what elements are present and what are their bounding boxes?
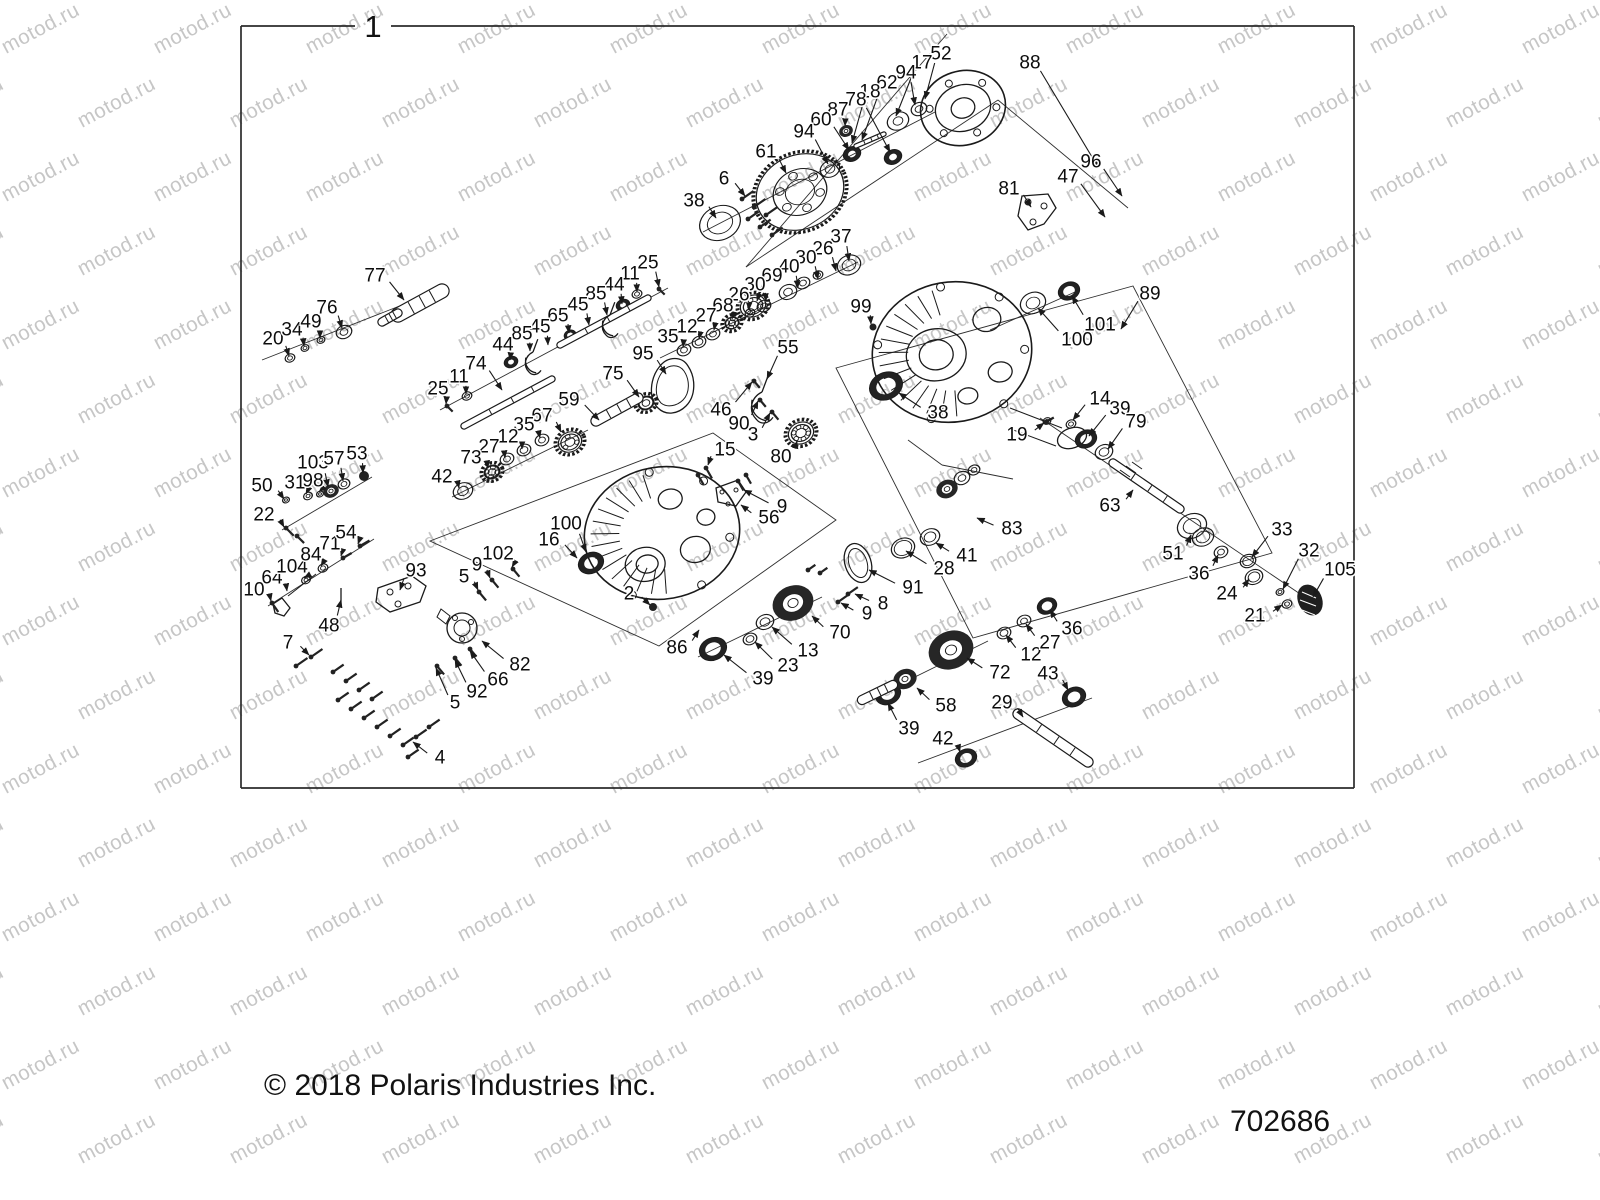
watermark-text: motod.ru	[1518, 738, 1600, 798]
watermark-text: motod.ru	[1062, 1034, 1148, 1094]
watermark-text: motod.ru	[1442, 664, 1528, 724]
bolt-part	[309, 649, 323, 659]
leader-line-8	[855, 594, 869, 601]
watermark-text: motod.ru	[74, 1108, 160, 1168]
watermark-text: motod.ru	[74, 368, 160, 428]
watermark-text: motod.ru	[0, 220, 7, 280]
callout-61: 61	[755, 142, 776, 163]
callout-94: 94	[793, 122, 815, 143]
callout-41: 41	[956, 546, 977, 567]
watermark-text: motod.ru	[682, 960, 768, 1020]
callout-45: 45	[529, 317, 550, 338]
leader-line-61	[779, 159, 786, 173]
callout-38: 38	[683, 191, 704, 212]
callout-9: 9	[862, 604, 873, 625]
shaft-part	[1113, 463, 1180, 509]
watermark-text: motod.ru	[1518, 886, 1600, 946]
callout-56: 56	[758, 508, 779, 529]
watermark-text: motod.ru	[834, 812, 920, 872]
bolt-part	[349, 702, 362, 712]
watermark-text: motod.ru	[910, 1034, 996, 1094]
watermark-text: motod.ru	[682, 220, 768, 280]
detent-ball	[359, 471, 369, 481]
leader-line-35	[538, 431, 540, 438]
callout-65: 65	[547, 306, 568, 327]
watermark-text: motod.ru	[0, 960, 7, 1020]
callout-6: 6	[719, 169, 730, 190]
exploded-parts-diagram: motod.rumotod.rumotod.rumotod.rumotod.ru…	[0, 0, 1600, 1200]
parts-diagram-page: motod.rumotod.rumotod.rumotod.rumotod.ru…	[0, 0, 1600, 1200]
leader-line-15	[708, 456, 711, 465]
callout-98: 98	[302, 471, 323, 492]
watermark-text: motod.ru	[606, 738, 692, 798]
watermark-text: motod.ru	[150, 1034, 236, 1094]
callout-77: 77	[364, 266, 385, 287]
callout-27: 27	[695, 306, 716, 327]
leader-line-32	[1283, 559, 1298, 589]
leader-line-41	[936, 543, 949, 551]
callout-32: 32	[1298, 541, 1319, 562]
callout-78: 78	[845, 90, 866, 111]
watermark-text: motod.ru	[74, 516, 160, 576]
leader-line-27	[504, 452, 505, 458]
callout-25: 25	[427, 379, 448, 400]
leader-line-101	[1072, 296, 1083, 315]
group-boundary-right	[836, 286, 1272, 638]
watermark-text: motod.ru	[0, 590, 83, 650]
watermark-text: motod.ru	[1518, 590, 1600, 650]
watermark-text: motod.ru	[758, 0, 844, 58]
leader-line-10	[270, 595, 271, 601]
bolt-part	[362, 711, 375, 721]
watermark-text: motod.ru	[226, 72, 312, 132]
watermark-text: motod.ru	[1442, 812, 1528, 872]
leader-line-39	[724, 655, 746, 673]
callout-66: 66	[487, 670, 508, 691]
watermark-text: motod.ru	[1594, 812, 1600, 872]
watermark-text: motod.ru	[1442, 220, 1528, 280]
bolt-part	[344, 674, 357, 684]
callout-9: 9	[472, 555, 483, 576]
watermark-text: motod.ru	[226, 1108, 312, 1168]
watermark-text: motod.ru	[226, 220, 312, 280]
watermark-text: motod.ru	[226, 664, 312, 724]
watermark-text: motod.ru	[1290, 812, 1376, 872]
watermark-text: motod.ru	[1138, 812, 1224, 872]
leader-line-66	[470, 651, 484, 672]
ring-part	[502, 354, 519, 370]
bolt-part	[758, 398, 766, 407]
bolt-part	[736, 479, 744, 491]
watermark-text: motod.ru	[1518, 146, 1600, 206]
watermark-text: motod.ru	[1594, 1108, 1600, 1168]
leader-line-67	[556, 422, 561, 432]
watermark-text: motod.ru	[150, 294, 236, 354]
callout-48: 48	[318, 616, 339, 637]
leader-line-55	[767, 356, 777, 379]
callout-44: 44	[492, 335, 514, 356]
callout-3: 3	[748, 425, 759, 446]
callout-94: 94	[895, 63, 917, 84]
ring-part	[1243, 567, 1265, 587]
callout-93: 93	[405, 561, 426, 582]
bolt-part	[414, 730, 427, 740]
bolt-part	[401, 738, 414, 748]
watermark-text: motod.ru	[1290, 368, 1376, 428]
watermark-text: motod.ru	[150, 442, 236, 502]
watermark-text: motod.ru	[1442, 368, 1528, 428]
bolt-part	[358, 541, 370, 549]
callout-20: 20	[262, 329, 283, 350]
assembly-callout-1: 1	[364, 9, 381, 44]
watermark-text: motod.ru	[530, 72, 616, 132]
callout-8: 8	[878, 594, 889, 615]
callout-80: 80	[770, 447, 791, 468]
watermark-text: motod.ru	[910, 886, 996, 946]
callout-59: 59	[558, 390, 579, 411]
watermark-text: motod.ru	[986, 812, 1072, 872]
callout-15: 15	[714, 440, 735, 461]
watermark-text: motod.ru	[986, 72, 1072, 132]
watermark-text: motod.ru	[530, 960, 616, 1020]
callout-86: 86	[666, 638, 687, 659]
watermark-text: motod.ru	[0, 146, 83, 206]
callout-12: 12	[1020, 645, 1041, 666]
ring-part	[284, 352, 296, 363]
callout-55: 55	[777, 338, 798, 359]
watermark-text: motod.ru	[150, 886, 236, 946]
watermark-text: motod.ru	[606, 886, 692, 946]
watermark-text: motod.ru	[834, 960, 920, 1020]
watermark-text: motod.ru	[0, 516, 7, 576]
watermark-text: motod.ru	[1442, 1108, 1528, 1168]
callout-99: 99	[850, 297, 871, 318]
watermark-text: motod.ru	[226, 368, 312, 428]
callout-4: 4	[435, 748, 446, 769]
watermark-text: motod.ru	[606, 0, 692, 58]
watermark-text: motod.ru	[530, 812, 616, 872]
callout-73: 73	[460, 448, 481, 469]
callout-43: 43	[1037, 664, 1058, 685]
watermark-text: motod.ru	[986, 1108, 1072, 1168]
leader-line-83	[977, 518, 994, 525]
watermark-text: motod.ru	[74, 664, 160, 724]
callout-25: 25	[637, 253, 658, 274]
watermark-text: motod.ru	[758, 886, 844, 946]
watermark-text: motod.ru	[910, 146, 996, 206]
watermark-text: motod.ru	[1366, 590, 1452, 650]
watermark-text: motod.ru	[682, 72, 768, 132]
callout-14: 14	[1089, 389, 1111, 410]
callout-5: 5	[450, 693, 461, 714]
bolt-part	[477, 590, 486, 601]
watermark-text: motod.ru	[1518, 442, 1600, 502]
watermark-text: motod.ru	[682, 1108, 768, 1168]
watermark-text: motod.ru	[454, 738, 540, 798]
leader-line-64	[286, 584, 287, 591]
watermark-text: motod.ru	[1518, 1034, 1600, 1094]
bolt-part	[370, 692, 383, 702]
callout-45: 45	[567, 295, 588, 316]
watermark-text: motod.ru	[378, 812, 464, 872]
bolt-part	[490, 578, 499, 588]
leader-line-12	[1006, 635, 1016, 648]
leader-line-58	[917, 688, 929, 700]
bolt-part	[336, 693, 349, 703]
watermark-text: motod.ru	[454, 0, 540, 58]
watermark-text: motod.ru	[1442, 960, 1528, 1020]
watermark-text: motod.ru	[1442, 72, 1528, 132]
bolt-part	[806, 565, 816, 573]
leader-line-6	[735, 183, 745, 196]
watermark-text: motod.ru	[1442, 516, 1528, 576]
watermark-text: motod.ru	[834, 1108, 920, 1168]
watermark-text: motod.ru	[1214, 738, 1300, 798]
leader-line-50	[278, 491, 284, 499]
callout-85: 85	[511, 324, 532, 345]
callout-27: 27	[478, 437, 499, 458]
callout-19: 19	[1006, 425, 1027, 446]
bolt-part	[511, 567, 520, 577]
callout-91: 91	[902, 578, 923, 599]
callout-82: 82	[509, 655, 530, 676]
callout-16: 16	[538, 530, 559, 551]
watermark-text: motod.ru	[1138, 72, 1224, 132]
watermark-text: motod.ru	[682, 812, 768, 872]
callout-89: 89	[1139, 284, 1160, 305]
watermark-text: motod.ru	[1594, 960, 1600, 1020]
callout-42: 42	[932, 729, 953, 750]
bolt-part	[331, 665, 344, 675]
ring-part	[1212, 544, 1229, 560]
leader-line-33	[1252, 536, 1268, 557]
callout-36: 36	[1188, 564, 1209, 585]
watermark-text: motod.ru	[302, 590, 388, 650]
bolt-part	[764, 207, 778, 217]
leader-line-54	[358, 539, 360, 544]
watermark-text: motod.ru	[454, 886, 540, 946]
watermark-text: motod.ru	[150, 0, 236, 58]
leader-line-28	[906, 551, 926, 564]
callout-100: 100	[1061, 330, 1093, 351]
bolt-part	[427, 720, 440, 730]
watermark-text: motod.ru	[986, 516, 1072, 576]
bolt-part	[770, 410, 779, 420]
callout-95: 95	[632, 344, 653, 365]
watermark-text: motod.ru	[1138, 664, 1224, 724]
leader-line-86	[692, 630, 699, 641]
callout-102: 102	[482, 544, 514, 565]
watermark-text: motod.ru	[74, 220, 160, 280]
leader-line-77	[390, 282, 404, 300]
bolt-part	[468, 647, 477, 657]
watermark-text: motod.ru	[1366, 294, 1452, 354]
watermark-text: motod.ru	[150, 590, 236, 650]
watermark-text: motod.ru	[0, 0, 83, 58]
watermark-text: motod.ru	[1594, 220, 1600, 280]
callout-54: 54	[335, 523, 357, 544]
ring-part	[1035, 595, 1060, 618]
watermark-text: motod.ru	[226, 960, 312, 1020]
callout-88: 88	[1019, 53, 1040, 74]
watermark-text: motod.ru	[682, 516, 768, 576]
watermark-text: motod.ru	[378, 960, 464, 1020]
callout-11: 11	[449, 367, 469, 388]
callout-92: 92	[466, 682, 487, 703]
callout-44: 44	[603, 275, 625, 296]
bolt-part	[744, 473, 751, 484]
leader-line-63	[1126, 490, 1133, 499]
bolt-part	[357, 683, 370, 693]
watermark-text: motod.ru	[74, 72, 160, 132]
watermark-text: motod.ru	[378, 220, 464, 280]
vent-plug-99	[870, 324, 877, 331]
callout-52: 52	[930, 44, 951, 65]
copyright-text: © 2018 Polaris Industries Inc.	[264, 1069, 656, 1102]
bolt-part	[341, 553, 352, 560]
callout-35: 35	[657, 327, 678, 348]
leader-line-7	[300, 646, 309, 655]
watermark-text: motod.ru	[1594, 516, 1600, 576]
watermark-text: motod.ru	[1138, 960, 1224, 1020]
part-number-text: 702686	[1230, 1105, 1330, 1138]
watermark-text: motod.ru	[1518, 0, 1600, 58]
watermark-text: motod.ru	[1214, 886, 1300, 946]
callout-24: 24	[1216, 584, 1238, 605]
leader-line-91	[869, 570, 895, 583]
watermark-text: motod.ru	[1594, 368, 1600, 428]
watermark-text: motod.ru	[1290, 664, 1376, 724]
callout-2: 2	[624, 584, 635, 605]
watermark-text: motod.ru	[986, 960, 1072, 1020]
callout-38: 38	[927, 403, 948, 424]
watermark-text: motod.ru	[1214, 146, 1300, 206]
callout-105: 105	[1324, 560, 1356, 581]
watermark-text: motod.ru	[530, 220, 616, 280]
callout-67: 67	[531, 406, 552, 427]
watermark-text: motod.ru	[0, 442, 83, 502]
ring-part	[1065, 418, 1077, 429]
drain-plug-2	[649, 603, 657, 611]
watermark-text: motod.ru	[1366, 886, 1452, 946]
leader-line-72	[967, 658, 982, 668]
callout-12: 12	[497, 427, 518, 448]
callout-58: 58	[935, 696, 956, 717]
callout-96: 96	[1080, 152, 1101, 173]
callout-50: 50	[251, 476, 272, 497]
watermark-text: motod.ru	[378, 72, 464, 132]
watermark-text: motod.ru	[1366, 146, 1452, 206]
bolt-part	[388, 729, 401, 739]
callout-36: 36	[1061, 619, 1082, 640]
bolt-part	[445, 404, 453, 412]
leader-line-100	[1038, 308, 1058, 331]
callout-7: 7	[283, 633, 294, 654]
callout-70: 70	[829, 623, 850, 644]
callout-81: 81	[998, 179, 1019, 200]
watermark-text: motod.ru	[302, 146, 388, 206]
watermark-text: motod.ru	[1062, 0, 1148, 58]
watermark-text: motod.ru	[758, 1034, 844, 1094]
construction-line	[908, 440, 942, 465]
callout-27: 27	[1039, 633, 1060, 654]
leader-line-5	[474, 582, 478, 590]
watermark-text: motod.ru	[454, 146, 540, 206]
callout-39: 39	[898, 719, 919, 740]
watermark-text: motod.ru	[0, 368, 7, 428]
watermark-text: motod.ru	[150, 738, 236, 798]
ring-part	[704, 326, 721, 342]
callout-29: 29	[991, 693, 1012, 714]
leader-line-19	[1035, 423, 1044, 430]
watermark-text: motod.ru	[530, 1108, 616, 1168]
watermark-text: motod.ru	[1594, 664, 1600, 724]
callout-28: 28	[933, 559, 954, 580]
leader-line-25	[656, 272, 659, 287]
callout-5: 5	[459, 567, 470, 588]
leader-line-9	[841, 603, 853, 610]
bolt-part	[818, 568, 828, 576]
shaft-part	[856, 134, 884, 146]
watermark-text: motod.ru	[1062, 886, 1148, 946]
watermark-text: motod.ru	[1290, 220, 1376, 280]
watermark-text: motod.ru	[1138, 220, 1224, 280]
callout-76: 76	[316, 298, 337, 319]
bolt-part	[375, 720, 388, 730]
callout-51: 51	[1162, 544, 1183, 565]
callout-57: 57	[323, 449, 344, 470]
leader-line-14	[1073, 405, 1085, 420]
leader-line-56	[741, 505, 751, 513]
watermark-text: motod.ru	[226, 812, 312, 872]
leader-line-79	[1108, 428, 1122, 449]
watermark-text: motod.ru	[606, 146, 692, 206]
callout-53: 53	[346, 444, 367, 465]
callout-22: 22	[253, 505, 274, 526]
watermark-text: motod.ru	[1594, 72, 1600, 132]
shaft-part	[596, 398, 638, 421]
watermark-text: motod.ru	[1138, 1108, 1224, 1168]
watermark-text: motod.ru	[1366, 442, 1452, 502]
callout-33: 33	[1271, 520, 1292, 541]
watermark-text: motod.ru	[1290, 72, 1376, 132]
callout-39: 39	[752, 669, 773, 690]
ring-part	[1055, 278, 1082, 303]
leader-line-9	[487, 570, 490, 578]
callout-21: 21	[1244, 606, 1265, 627]
watermark-text: motod.ru	[1366, 1034, 1452, 1094]
callout-75: 75	[602, 364, 623, 385]
watermark-text: motod.ru	[0, 812, 7, 872]
callout-13: 13	[797, 641, 818, 662]
boot-105	[1293, 581, 1328, 620]
ring-part	[533, 432, 550, 448]
drive-chain-inner	[656, 366, 688, 406]
callout-12: 12	[676, 317, 697, 338]
callout-90: 90	[728, 414, 749, 435]
callout-37: 37	[830, 227, 851, 248]
gear-part	[551, 425, 588, 460]
watermark-text: motod.ru	[150, 146, 236, 206]
watermark-text: motod.ru	[378, 1108, 464, 1168]
watermark-text: motod.ru	[530, 664, 616, 724]
watermark-text: motod.ru	[0, 1034, 83, 1094]
bolt-part	[406, 750, 419, 760]
watermark-text: motod.ru	[1214, 1034, 1300, 1094]
watermark-text: motod.ru	[302, 886, 388, 946]
watermark-text: motod.ru	[1214, 0, 1300, 58]
watermark-layer: motod.rumotod.rumotod.rumotod.rumotod.ru…	[0, 0, 1600, 1168]
